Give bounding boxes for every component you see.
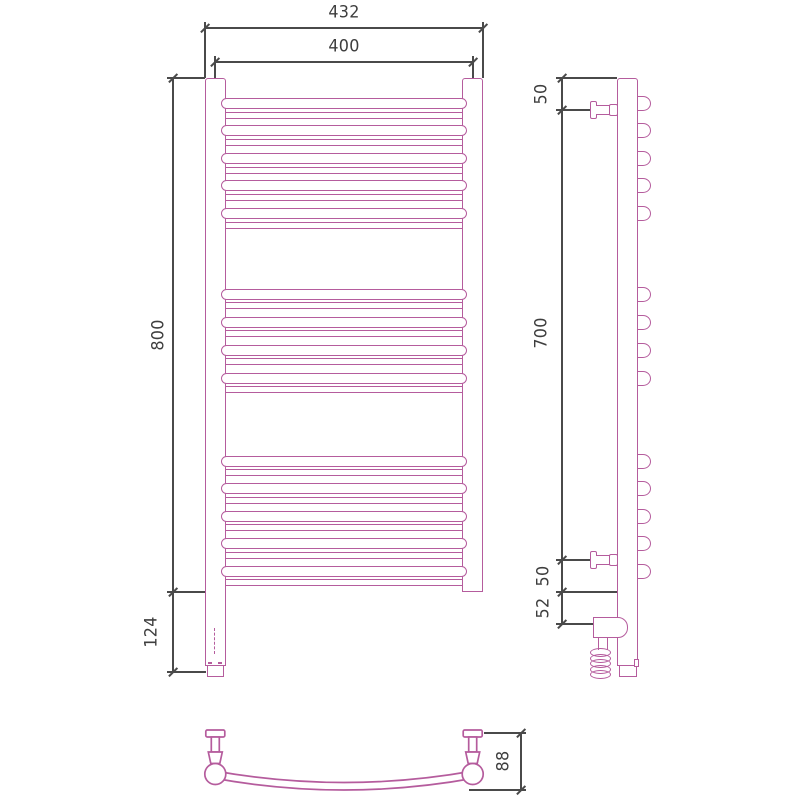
towel-bar-straight <box>225 222 463 229</box>
towel-bar-straight <box>225 167 463 174</box>
bow-bar-inner-edge <box>215 771 473 783</box>
dimension-line <box>205 27 483 29</box>
cable-coil-loop <box>590 670 611 679</box>
extension-line <box>556 591 617 593</box>
bracket-wall-plate <box>463 730 482 737</box>
dim-bottom-extension-label: 124 <box>144 616 161 647</box>
curved-bar-end <box>636 206 651 221</box>
towel-bar-straight <box>225 330 463 337</box>
dim-depth-label: 88 <box>496 751 513 772</box>
towel-bar-curved <box>221 566 467 577</box>
bracket-wall-plate <box>206 730 225 737</box>
curved-bar-end <box>636 454 651 469</box>
dimension-line <box>520 733 522 790</box>
towel-bar-curved <box>221 289 467 300</box>
curved-bar-end <box>636 178 651 193</box>
towel-rail-technical-drawing: 432 400 800 124 50 700 50 52 <box>0 0 800 800</box>
dim-heater-drop-label: 52 <box>536 598 553 619</box>
bracket-stem <box>596 105 610 115</box>
rail-fitting-notch <box>634 659 639 667</box>
towel-bar-straight <box>225 386 463 393</box>
towel-bar-curved <box>221 456 467 467</box>
bracket-collar <box>208 752 222 764</box>
dimension-line <box>215 61 473 63</box>
towel-bar-curved <box>221 511 467 522</box>
towel-bar-curved <box>221 180 467 191</box>
left-rail-bottom-cap <box>207 665 224 677</box>
towel-bar-straight <box>225 139 463 146</box>
towel-bar-curved <box>221 98 467 109</box>
bracket-stem <box>596 555 610 565</box>
towel-bar-curved <box>221 208 467 219</box>
extension-line <box>556 77 617 79</box>
extension-line <box>204 22 206 78</box>
towel-bar-curved <box>221 373 467 384</box>
dim-axis-width-label: 400 <box>328 39 359 56</box>
curved-bar-end <box>636 96 651 111</box>
curved-bar-end <box>636 371 651 386</box>
bracket-collar <box>609 104 618 116</box>
curved-bar-end <box>636 343 651 358</box>
bow-bar-outer-edge <box>213 778 475 790</box>
dimension-line <box>561 78 563 624</box>
extension-line <box>482 22 484 78</box>
towel-bar-curved <box>221 317 467 328</box>
dim-top-bracket-label: 50 <box>534 84 551 105</box>
rail-tube-section <box>462 764 483 785</box>
curved-bar-end <box>636 481 651 496</box>
towel-bar-straight <box>225 469 463 476</box>
bracket-stem <box>211 737 219 752</box>
towel-bar-straight <box>225 194 463 201</box>
towel-bar-curved <box>221 153 467 164</box>
towel-bar-straight <box>225 358 463 365</box>
curved-bar-end <box>636 315 651 330</box>
cap-joint-mark <box>218 662 222 664</box>
dimension-line <box>172 78 174 672</box>
cap-joint-mark <box>208 662 212 664</box>
towel-bar-straight <box>225 497 463 504</box>
curved-bar-end <box>636 151 651 166</box>
rail-tube-section <box>205 764 226 785</box>
bracket-collar <box>466 752 480 764</box>
curved-bar-end <box>636 287 651 302</box>
bracket-collar <box>609 554 618 566</box>
towel-bar-straight <box>225 524 463 531</box>
dim-bottom-bracket-label: 50 <box>536 566 553 587</box>
bottom-view <box>180 718 540 800</box>
heater-housing <box>593 617 628 638</box>
hidden-heating-element-line <box>214 628 215 654</box>
towel-bar-curved <box>221 483 467 494</box>
towel-bar-straight <box>225 579 463 586</box>
towel-bar-curved <box>221 538 467 549</box>
curved-bar-end <box>636 123 651 138</box>
dim-overall-width-label: 432 <box>328 5 359 22</box>
towel-bar-straight <box>225 302 463 309</box>
dim-bracket-span-label: 700 <box>534 317 551 348</box>
rail-profile <box>617 78 638 666</box>
left-rail <box>205 78 226 666</box>
curved-bar-end <box>636 536 651 551</box>
curved-bar-end <box>636 564 651 579</box>
towel-bar-straight <box>225 112 463 119</box>
curved-bar-end <box>636 509 651 524</box>
towel-bar-curved <box>221 345 467 356</box>
towel-bar-straight <box>225 552 463 559</box>
towel-bar-curved <box>221 125 467 136</box>
bracket-stem <box>469 737 477 752</box>
dim-height-label: 800 <box>151 319 168 350</box>
